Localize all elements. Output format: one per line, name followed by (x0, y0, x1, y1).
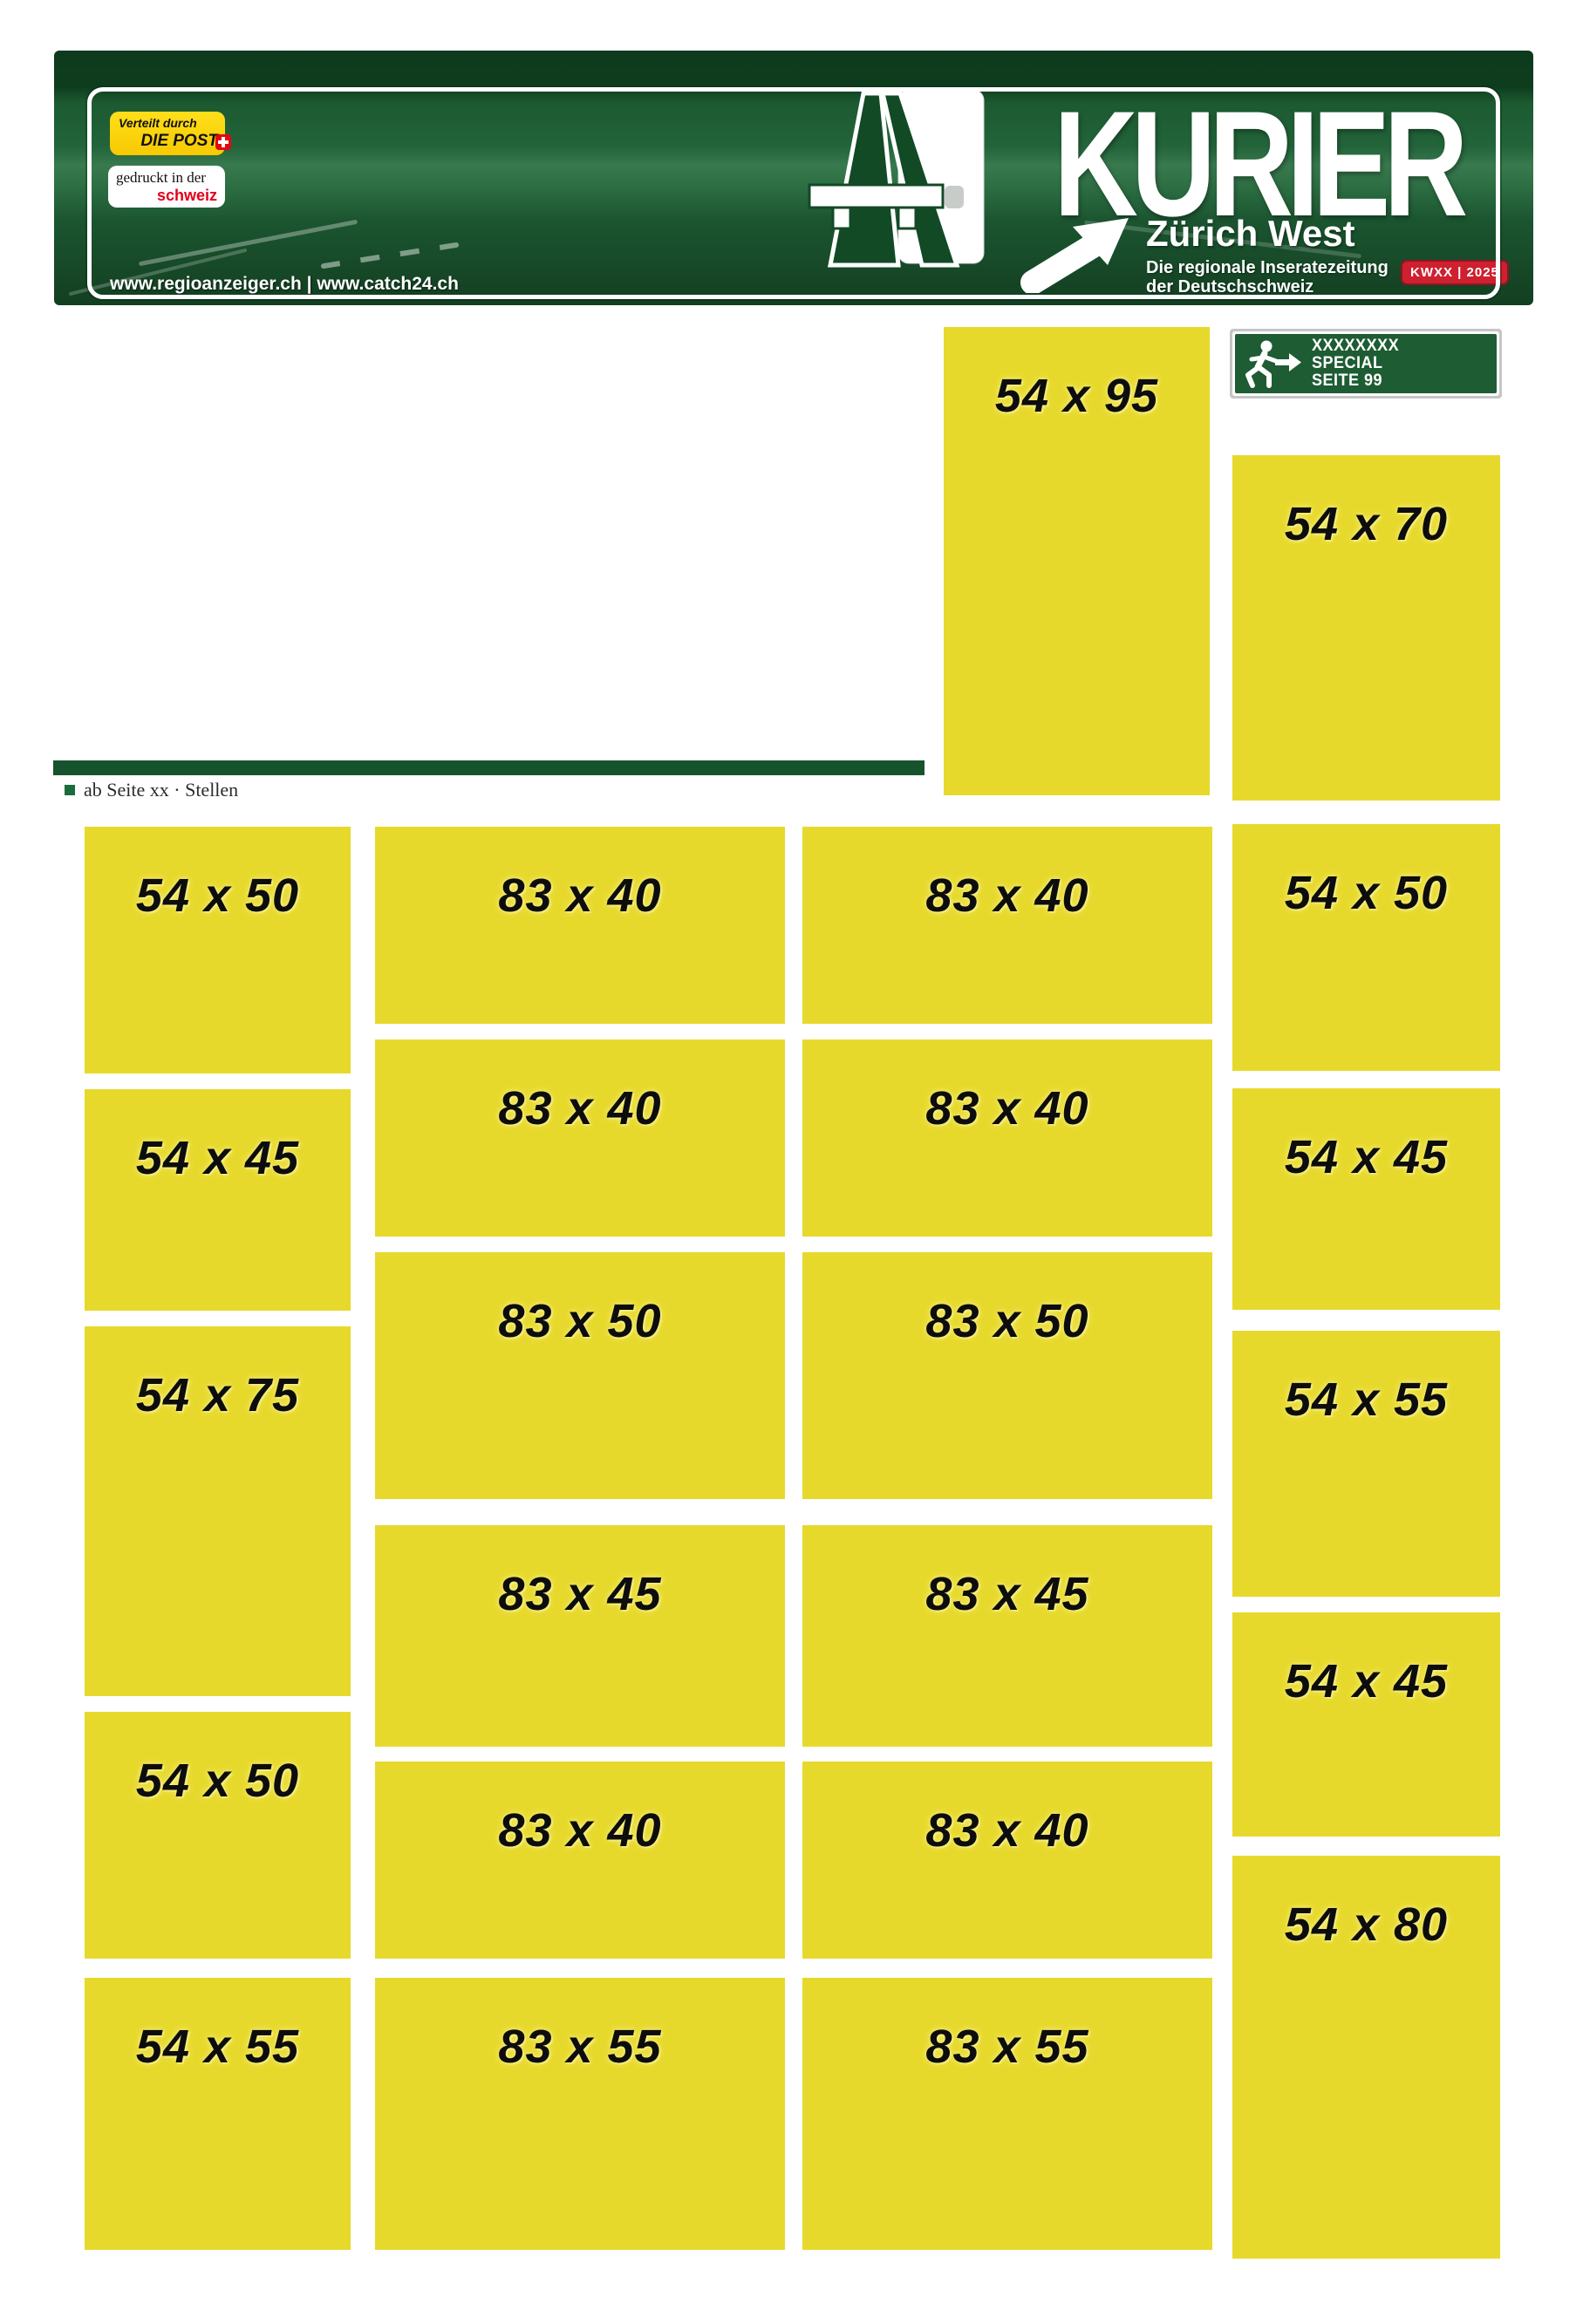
section-divider-bar (53, 760, 925, 775)
ad-slot-54x45: 54 x 45 (1232, 1612, 1500, 1837)
ad-size-label: 54 x 75 (136, 1369, 299, 1421)
special-sign-text: XXXXXXXX SPECIAL SEITE 99 (1312, 337, 1399, 390)
ad-size-label: 54 x 45 (1285, 1131, 1448, 1183)
ad-slot-54x50: 54 x 50 (85, 1712, 351, 1959)
special-sign-line2: SPECIAL (1312, 354, 1383, 372)
die-post-line2: DIE POST (119, 132, 218, 151)
ad-slot-54x45: 54 x 45 (85, 1089, 351, 1311)
week-year-badge: KWXX | 2025 (1401, 260, 1509, 285)
ad-slot-54x50: 54 x 50 (85, 827, 351, 1073)
ad-size-label: 54 x 50 (136, 869, 299, 922)
ad-slot-83x40: 83 x 40 (375, 1039, 785, 1237)
printed-in-switzerland-badge: gedruckt in der schweiz (108, 166, 225, 208)
ad-slot-83x50: 83 x 50 (802, 1252, 1212, 1499)
printed-badge-line2: schweiz (116, 187, 217, 205)
ad-size-label: 83 x 50 (498, 1295, 661, 1347)
ad-size-label: 54 x 95 (995, 370, 1158, 422)
ad-size-label: 54 x 45 (1285, 1655, 1448, 1707)
ad-slot-83x45: 83 x 45 (375, 1525, 785, 1747)
ad-size-label: 54 x 55 (136, 2021, 299, 2073)
tagline-line1: Die regionale Inseratezeitung (1146, 258, 1389, 277)
printed-badge-line1: gedruckt in der (116, 169, 217, 187)
ad-size-label: 83 x 40 (925, 869, 1088, 922)
ad-slot-83x55: 83 x 55 (802, 1978, 1212, 2250)
ad-slot-83x50: 83 x 50 (375, 1252, 785, 1499)
page: Verteilt durch DIE POST gedruckt in der … (0, 0, 1583, 2324)
ad-size-label: 54 x 55 (1285, 1373, 1448, 1426)
ad-slot-83x40: 83 x 40 (802, 1039, 1212, 1237)
section-bullet-icon (65, 785, 75, 795)
ad-size-label: 54 x 50 (136, 1755, 299, 1807)
special-exit-sign: XXXXXXXX SPECIAL SEITE 99 (1230, 329, 1502, 399)
section-caption: ab Seite xx · Stellen (65, 779, 238, 801)
ad-size-label: 83 x 50 (925, 1295, 1088, 1347)
ad-slot-54x50: 54 x 50 (1232, 824, 1500, 1071)
tagline: Die regionale Inseratezeitung der Deutsc… (1146, 258, 1389, 296)
exit-arrow-icon (1020, 213, 1136, 293)
die-post-badge: Verteilt durch DIE POST (110, 112, 225, 155)
ad-slot-54x75: 54 x 75 (85, 1326, 351, 1696)
ad-slot-83x40: 83 x 40 (802, 827, 1212, 1024)
ad-size-label: 83 x 55 (498, 2021, 661, 2073)
ad-slot-54x80: 54 x 80 (1232, 1856, 1500, 2259)
ad-size-label: 83 x 40 (925, 1082, 1088, 1135)
section-caption-text: ab Seite xx · Stellen (84, 779, 238, 801)
special-sign-line3: SEITE 99 (1312, 371, 1382, 390)
ad-slot-54x55: 54 x 55 (85, 1978, 351, 2250)
ad-slot-54x70: 54 x 70 (1232, 455, 1500, 801)
ad-size-label: 54 x 80 (1285, 1898, 1448, 1951)
ad-slot-83x40: 83 x 40 (802, 1762, 1212, 1959)
ad-size-label: 83 x 40 (925, 1804, 1088, 1857)
running-man-icon (1240, 338, 1303, 389)
ad-size-label: 83 x 40 (498, 1082, 661, 1135)
ad-slot-54x95: 54 x 95 (944, 327, 1210, 795)
ad-size-label: 83 x 45 (925, 1568, 1088, 1620)
ad-slot-83x40: 83 x 40 (375, 827, 785, 1024)
ad-slot-54x55: 54 x 55 (1232, 1331, 1500, 1597)
ad-size-label: 83 x 40 (498, 1804, 661, 1857)
ad-slot-54x45: 54 x 45 (1232, 1088, 1500, 1310)
swiss-post-cross-icon (215, 134, 231, 150)
motorway-icon (807, 83, 990, 268)
ad-size-label: 83 x 55 (925, 2021, 1088, 2073)
ad-slot-83x55: 83 x 55 (375, 1978, 785, 2250)
ad-size-label: 83 x 40 (498, 869, 661, 922)
ad-slot-83x40: 83 x 40 (375, 1762, 785, 1959)
ad-size-label: 54 x 50 (1285, 867, 1448, 919)
tagline-line2: der Deutschschweiz (1146, 277, 1313, 296)
edition-title: Zürich West (1146, 213, 1355, 255)
website-urls: www.regioanzeiger.ch | www.catch24.ch (110, 274, 459, 295)
ad-slot-83x45: 83 x 45 (802, 1525, 1212, 1747)
ad-size-label: 54 x 45 (136, 1132, 299, 1184)
masthead-banner: Verteilt durch DIE POST gedruckt in der … (54, 51, 1533, 305)
ad-size-label: 83 x 45 (498, 1568, 661, 1620)
ad-size-label: 54 x 70 (1285, 498, 1448, 550)
die-post-line1: Verteilt durch (119, 116, 218, 130)
special-sign-line1: XXXXXXXX (1312, 337, 1399, 355)
